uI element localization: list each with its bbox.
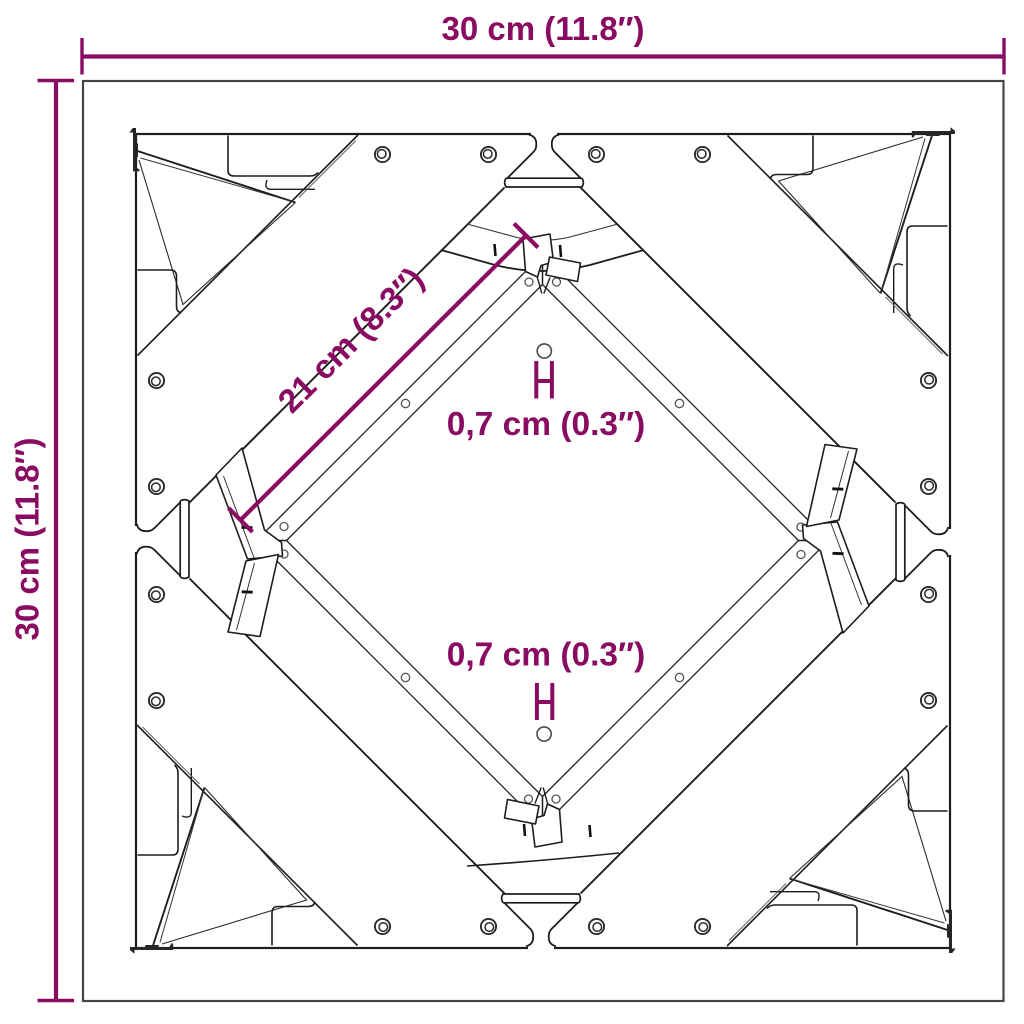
svg-text:0,7 cm (0.3″): 0,7 cm (0.3″) (447, 637, 646, 674)
svg-text:30 cm (11.8″): 30 cm (11.8″) (442, 10, 645, 47)
svg-text:0,7 cm (0.3″): 0,7 cm (0.3″) (447, 406, 646, 443)
svg-text:30 cm (11.8″): 30 cm (11.8″) (9, 438, 46, 641)
